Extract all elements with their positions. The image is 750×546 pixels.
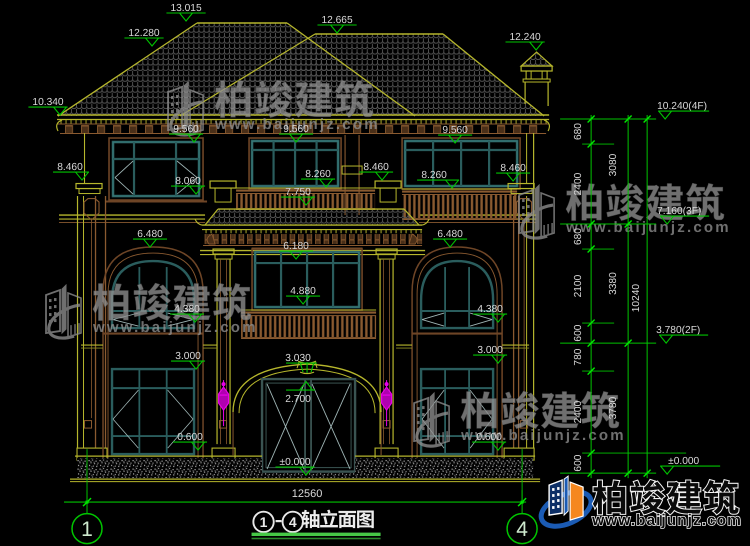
svg-text:4.380: 4.380 [477, 304, 503, 315]
svg-text:3.000: 3.000 [175, 351, 201, 362]
svg-text:8.260: 8.260 [305, 169, 331, 180]
svg-text:10.340: 10.340 [32, 97, 63, 108]
svg-text:www.baijunjz.com: www.baijunjz.com [92, 319, 258, 336]
svg-text:0.600: 0.600 [177, 432, 203, 443]
svg-text:600: 600 [573, 454, 584, 471]
svg-text:7.750: 7.750 [285, 187, 311, 198]
svg-text:600: 600 [573, 324, 584, 341]
svg-text:8.260: 8.260 [421, 170, 447, 181]
svg-text:2100: 2100 [573, 274, 584, 297]
svg-text:8.460: 8.460 [363, 162, 389, 173]
svg-text:3380: 3380 [608, 272, 619, 295]
svg-text:680: 680 [573, 228, 584, 245]
svg-text:3.030: 3.030 [285, 353, 311, 364]
svg-text:680: 680 [573, 123, 584, 140]
svg-text:3780: 3780 [608, 396, 619, 419]
svg-text:10.240(4F): 10.240(4F) [657, 101, 707, 112]
svg-text:2.700: 2.700 [285, 394, 311, 405]
svg-text:3.780(2F): 3.780(2F) [656, 325, 700, 336]
svg-text:780: 780 [573, 348, 584, 365]
svg-text:12560: 12560 [292, 488, 323, 500]
svg-text:3080: 3080 [608, 153, 619, 176]
svg-text:9.560: 9.560 [283, 124, 309, 135]
svg-text:12.240: 12.240 [510, 32, 541, 43]
svg-text:9.560: 9.560 [173, 124, 199, 135]
svg-text:6.180: 6.180 [283, 241, 309, 252]
svg-text:4.380: 4.380 [174, 304, 200, 315]
svg-text:±0.000: ±0.000 [668, 456, 699, 467]
svg-text:2400: 2400 [573, 400, 584, 423]
svg-text:8.460: 8.460 [500, 163, 526, 174]
svg-text:4: 4 [289, 514, 297, 530]
svg-text:12.280: 12.280 [128, 28, 159, 39]
svg-text:1: 1 [260, 514, 268, 530]
svg-text:www.baijunjz.com: www.baijunjz.com [565, 219, 731, 236]
svg-text:2400: 2400 [573, 172, 584, 195]
svg-text:6.480: 6.480 [137, 229, 163, 240]
svg-text:8.460: 8.460 [57, 162, 83, 173]
svg-text:4.880: 4.880 [290, 286, 316, 297]
svg-text:10240: 10240 [631, 284, 642, 313]
svg-text:7.160(3F): 7.160(3F) [657, 206, 701, 217]
svg-text:9.560: 9.560 [442, 125, 468, 136]
svg-text:12.665: 12.665 [321, 15, 352, 26]
svg-text:0.600: 0.600 [476, 432, 502, 443]
svg-text:4: 4 [516, 518, 528, 541]
svg-text:13.015: 13.015 [170, 3, 201, 14]
svg-text:1: 1 [81, 518, 93, 541]
svg-text:3.000: 3.000 [477, 345, 503, 356]
svg-text:±0.000: ±0.000 [280, 457, 311, 468]
svg-text:www.baijunjz.com: www.baijunjz.com [591, 512, 742, 529]
svg-text:6.480: 6.480 [437, 229, 463, 240]
svg-text:8.060: 8.060 [175, 176, 201, 187]
